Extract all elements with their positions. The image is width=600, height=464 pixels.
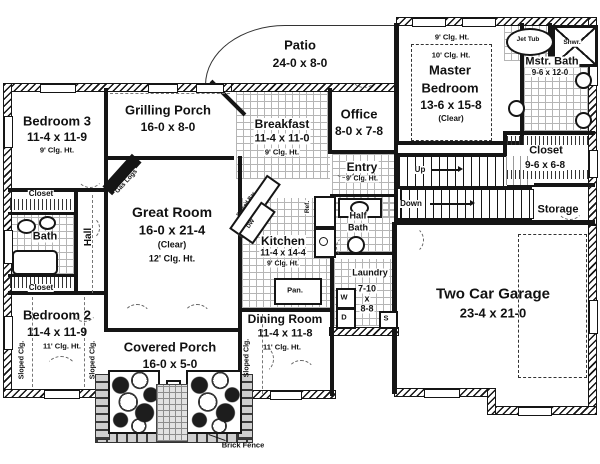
wall-exterior	[488, 389, 495, 414]
floor-plan: Bedroom 3 11-4 x 11-9 9' Clg. Ht. Closet…	[0, 0, 600, 464]
wall	[74, 191, 78, 295]
room-name: Grilling Porch	[125, 104, 211, 117]
room-name: Half	[348, 212, 367, 221]
closet-rod	[507, 170, 591, 179]
room-name: Great Room	[132, 205, 212, 219]
door-arc	[122, 304, 152, 334]
wall	[503, 131, 595, 135]
master-toilet	[508, 100, 525, 117]
room-name: Two Car Garage	[436, 287, 550, 302]
window	[196, 84, 224, 93]
room-name: Closet	[28, 284, 54, 292]
room-name: Bedroom	[421, 82, 478, 95]
room-dims: 16-0 x 21-4	[139, 224, 206, 237]
master-sink	[575, 72, 592, 89]
wall	[394, 23, 399, 143]
room-name: Hall	[84, 228, 94, 246]
bath-sink	[39, 216, 56, 230]
ceiling-note: 9' Clg. Ht.	[40, 146, 74, 154]
room-dims: 8-8	[359, 305, 374, 314]
room-dims: 8-0 x 7-8	[335, 125, 383, 137]
room-dims: 23-4 x 21-0	[460, 307, 527, 320]
fixture-label: Jet Tub	[517, 37, 540, 44]
room-dims: 11-4 x 11-8	[257, 329, 312, 340]
down-arrow-line	[430, 203, 470, 205]
room-name: Office	[341, 108, 378, 121]
ceiling-note: 11' Clg. Ht.	[263, 343, 301, 351]
ceiling-note: 12' Clg. Ht.	[149, 255, 195, 264]
window	[40, 84, 76, 93]
planter	[108, 370, 160, 434]
room-dims: 11-4 x 11-9	[27, 326, 87, 338]
brick-walkway	[156, 384, 188, 442]
porch-open-line	[110, 93, 230, 94]
room-dims: 9-6 x 6-8	[524, 161, 566, 171]
ceiling-note: 11' Clg. Ht.	[43, 342, 81, 350]
wall	[104, 156, 234, 160]
refrigerator	[314, 196, 336, 228]
window	[148, 84, 178, 93]
room-name: Breakfast	[254, 118, 311, 130]
window	[4, 316, 13, 350]
window	[4, 116, 13, 148]
fixture-label: Pan.	[287, 286, 303, 294]
room-name: Covered Porch	[124, 341, 216, 354]
room-name: Closet	[28, 190, 54, 198]
fixture-label: Ref.	[305, 200, 312, 214]
window	[44, 390, 80, 399]
room-name: Kitchen	[260, 235, 306, 247]
room-name: Bath	[347, 224, 369, 233]
fixture-label: W	[340, 293, 347, 301]
room-name: Bath	[32, 232, 58, 243]
ceiling-note: 10' Clg. Ht.	[432, 51, 470, 59]
bathtub	[12, 250, 58, 275]
garage-dashed-box	[518, 234, 587, 378]
room-dims: 16-0 x 8-0	[141, 121, 196, 133]
wall	[330, 310, 334, 396]
room-name: Mstr. Bath	[524, 57, 579, 68]
master-sink	[575, 112, 592, 129]
room-note: (Clear)	[438, 115, 463, 123]
room-name: Bedroom 3	[23, 115, 91, 128]
wall	[392, 222, 397, 394]
room-dims: 11-4 x 11-0	[253, 134, 310, 145]
planter	[186, 370, 242, 434]
window	[412, 18, 446, 27]
room-name: Patio	[284, 39, 316, 52]
room-dims: x	[363, 295, 370, 304]
sloped-ceiling-note: Sloped Clg.	[90, 341, 97, 380]
stairs-down-label: Down	[399, 200, 423, 208]
fixture-label: Shwr.	[562, 40, 581, 47]
door-arc	[44, 356, 78, 390]
wall	[330, 194, 396, 197]
closet-rod	[10, 199, 72, 210]
room-note: (Clear)	[158, 241, 187, 250]
room-dims: 24-0 x 8-0	[273, 57, 328, 69]
room-dims: 11-4 x 11-9	[27, 131, 87, 143]
room-name: Closet	[528, 146, 564, 157]
room-dims: 13-6 x 15-8	[420, 99, 481, 111]
wall-exterior	[330, 328, 398, 335]
up-arrow-line	[432, 169, 458, 171]
door-arc	[182, 304, 212, 334]
fixture-label: D	[341, 313, 346, 321]
wall	[238, 156, 242, 396]
brick-fence-label: Brick Fence	[222, 441, 265, 449]
room-dims: 11-4 x 14-4	[259, 249, 307, 258]
wall	[8, 291, 108, 295]
wall	[8, 188, 108, 192]
room-name: Laundry	[351, 269, 389, 278]
ceiling-note: 9' Clg. Ht.	[435, 33, 469, 41]
range-knob	[319, 237, 328, 246]
ceiling-note: 9' Clg. Ht.	[266, 261, 300, 268]
room-name: Bedroom 2	[23, 309, 91, 322]
wall-exterior	[232, 84, 398, 91]
room-dims: 7-10	[357, 285, 377, 294]
wall	[104, 88, 108, 332]
down-arrow-head	[470, 200, 475, 206]
window	[424, 389, 460, 398]
room-name: Dining Room	[248, 313, 323, 325]
room-name: Master	[429, 64, 471, 77]
ceiling-note: 9' Clg. Ht.	[345, 176, 379, 183]
room-name: Storage	[538, 205, 579, 216]
wall	[8, 212, 78, 215]
ceiling-note: 9' Clg. Ht.	[264, 148, 300, 156]
door-arc	[286, 360, 316, 390]
window	[270, 391, 302, 400]
room-dims: 16-0 x 5-0	[143, 358, 198, 370]
room-name: Entry	[346, 161, 379, 173]
room-dims: 9-6 x 12-0	[531, 69, 569, 77]
window	[589, 300, 598, 334]
door-arc	[76, 160, 104, 188]
half-bath-toilet	[347, 236, 365, 254]
door-arc	[396, 226, 424, 254]
up-arrow-head	[458, 166, 463, 172]
door-arc	[350, 60, 378, 88]
window	[518, 407, 552, 416]
window	[462, 18, 496, 27]
stairs-up-label: Up	[414, 166, 427, 174]
wall	[328, 88, 332, 154]
sloped-ceiling-note: Sloped Clg.	[244, 339, 251, 378]
sloped-ceiling-note: Sloped Clg.	[19, 341, 26, 380]
fixture-label: S	[383, 314, 388, 322]
